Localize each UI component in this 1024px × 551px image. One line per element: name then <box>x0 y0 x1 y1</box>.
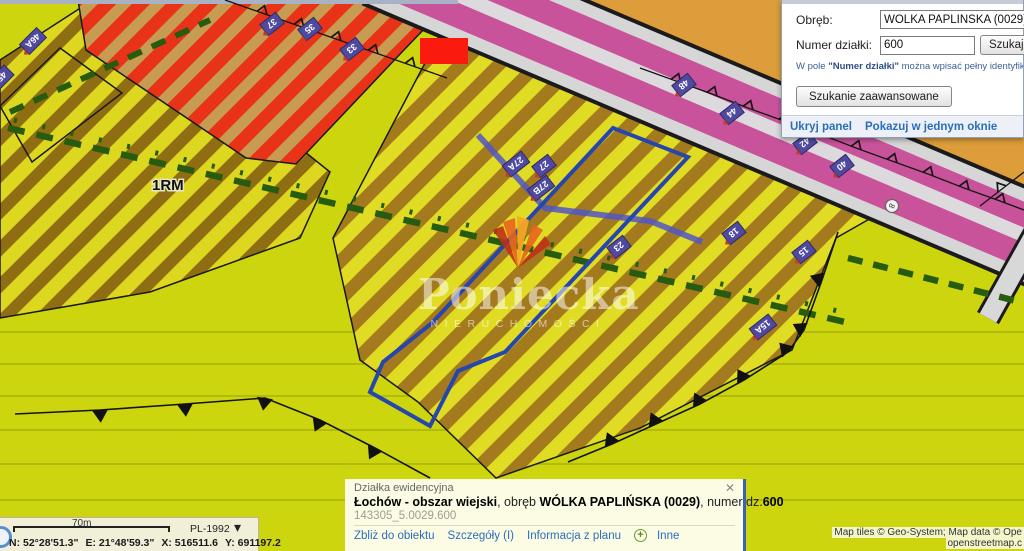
plan-info-link[interactable]: Informacja z planu <box>527 530 621 542</box>
coord-y: Y: 691197.2 <box>225 537 281 549</box>
chevron-down-icon[interactable]: ▾ <box>234 519 241 536</box>
scale-label: 70m <box>72 518 91 529</box>
status-bar: 70m PL-1992 ▾ N: 52°28'51.3"E: 21°48'59.… <box>0 517 259 551</box>
coord-e: E: 21°48'59.3" <box>85 537 154 549</box>
zoom-to-object-link[interactable]: Zbliż do obiektu <box>354 530 435 542</box>
close-icon[interactable]: ✕ <box>725 482 735 494</box>
search-panel: Obręb: Numer działki: Szukaj W pole "Num… <box>781 0 1024 138</box>
obreb-label: Obręb: <box>796 13 880 27</box>
hide-panel-link[interactable]: Ukryj panel <box>790 121 852 133</box>
obreb-select[interactable] <box>880 10 1024 29</box>
search-help-text: W pole "Numer działki" można wpisać pełn… <box>796 61 1023 72</box>
road-point-marker: 8 <box>886 200 899 213</box>
map-application-window: 1RM 46A 45 37 35 33 48 44 42 40 27A 27 2… <box>0 0 1024 551</box>
popup-parcel-identifier: 143305_5.0029.600 <box>354 510 735 522</box>
red-highlight-marker <box>420 38 468 64</box>
parcel-info-popup: Działka ewidencyjna ✕ Łochów - obszar wi… <box>345 479 746 551</box>
advanced-search-button[interactable]: Szukanie zaawansowane <box>796 86 952 107</box>
details-link[interactable]: Szczegóły (I) <box>448 530 514 542</box>
attribution-line2: openstreetmap.c <box>946 538 1024 549</box>
scale-bar <box>13 526 170 532</box>
crs-selector[interactable]: PL-1992 <box>190 523 230 535</box>
coord-n: N: 52°28'51.3" <box>9 537 78 549</box>
parcel-number-label: Numer działki: <box>796 38 880 52</box>
popup-title: Działka ewidencyjna <box>354 482 454 494</box>
other-link[interactable]: Inne <box>657 530 679 542</box>
single-window-link[interactable]: Pokazuj w jednym oknie <box>865 121 997 133</box>
attribution-line1: Map tiles © Geo-System; Map data © Ope <box>832 527 1024 538</box>
cursor-coordinates: N: 52°28'51.3"E: 21°48'59.3"X: 516511.6Y… <box>9 537 288 549</box>
parcel-number-input[interactable] <box>880 36 975 55</box>
zone-label-1rm: 1RM <box>152 177 184 194</box>
popup-parcel-description: Łochów - obszar wiejski, obręb WÓLKA PAP… <box>354 495 735 509</box>
panel-top-strip <box>782 0 1023 4</box>
search-button[interactable]: Szukaj <box>980 35 1024 55</box>
plus-icon[interactable]: + <box>634 529 647 542</box>
coord-x: X: 516511.6 <box>161 537 218 549</box>
map-attribution: Map tiles © Geo-System; Map data © Ope o… <box>832 527 1024 549</box>
